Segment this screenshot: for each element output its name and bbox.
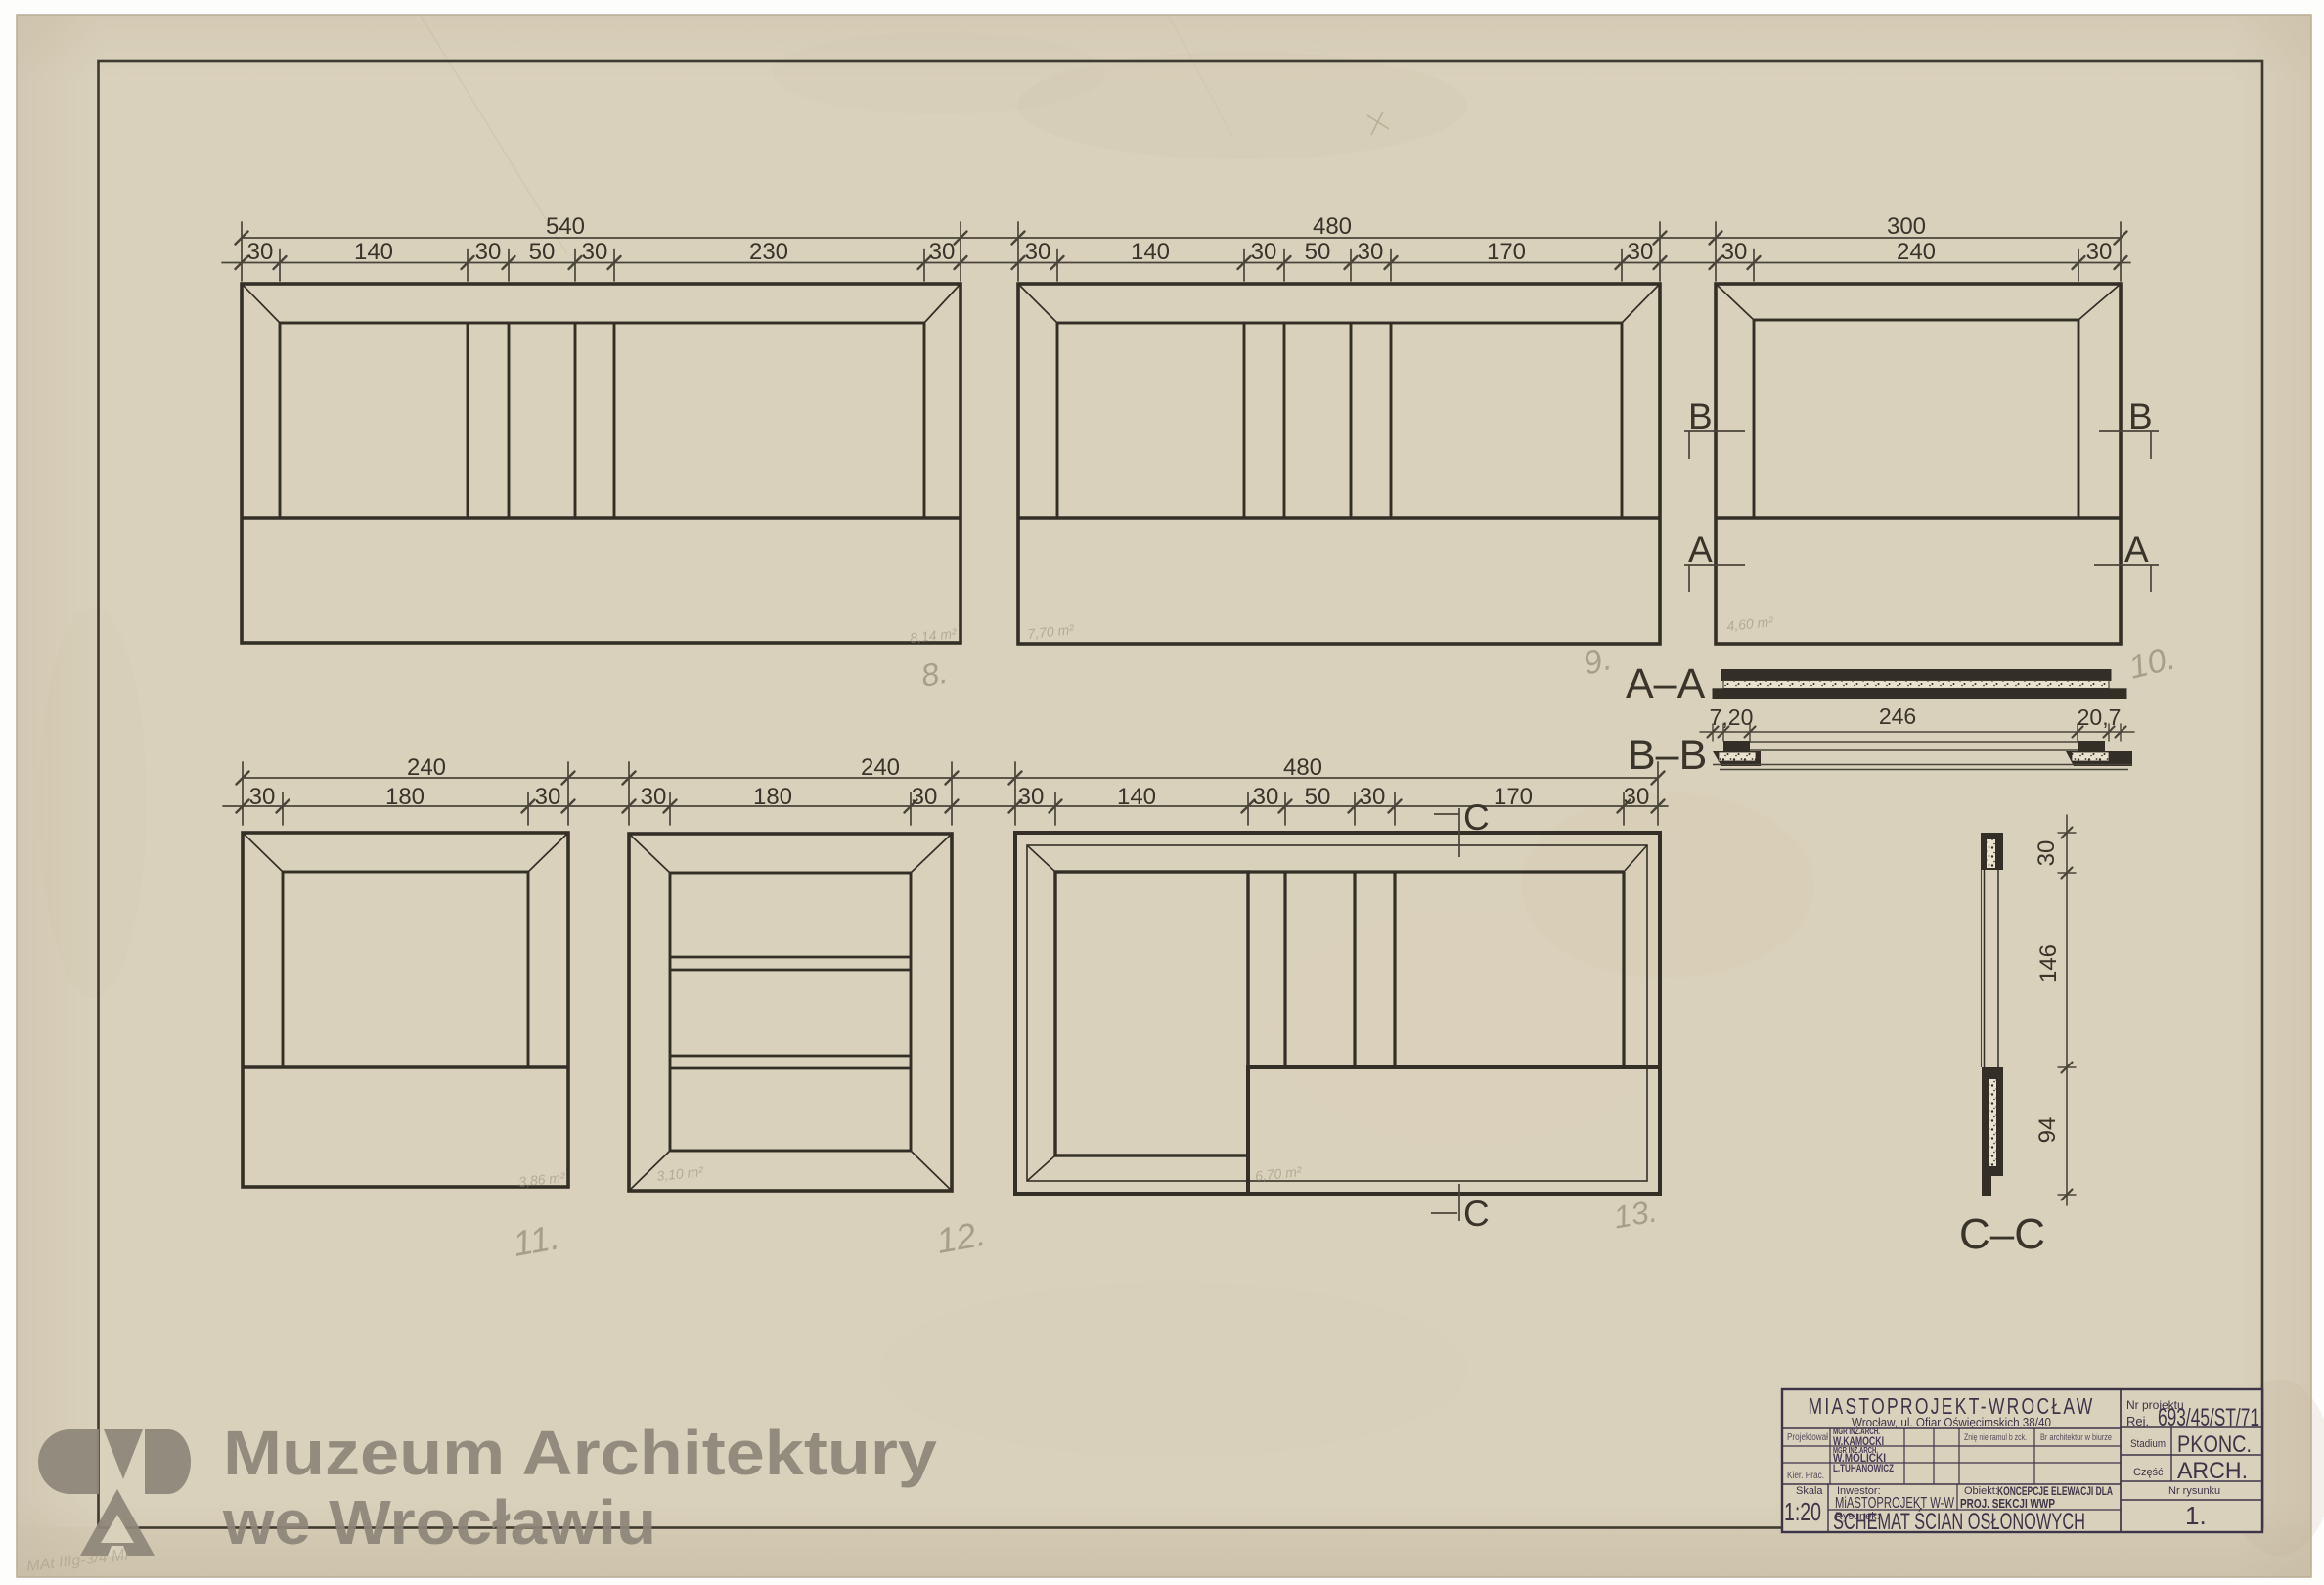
svg-text:240: 240 xyxy=(407,754,446,781)
svg-text:B: B xyxy=(2128,396,2153,436)
svg-text:1.: 1. xyxy=(2185,1501,2207,1530)
svg-text:140: 140 xyxy=(354,239,393,265)
svg-text:Br architektur w biurze: Br architektur w biurze xyxy=(2040,1432,2112,1442)
svg-text:30: 30 xyxy=(535,784,561,810)
svg-text:Znię nie ramul b zck.: Znię nie ramul b zck. xyxy=(1964,1432,2027,1442)
svg-text:50: 50 xyxy=(1305,239,1331,265)
svg-text:we Wrocławiu: we Wrocławiu xyxy=(222,1487,656,1558)
svg-text:Muzeum Architektury: Muzeum Architektury xyxy=(223,1418,937,1488)
svg-text:Część: Część xyxy=(2133,1467,2164,1478)
svg-text:ARCH.: ARCH. xyxy=(2177,1458,2248,1484)
svg-text:30: 30 xyxy=(582,239,608,265)
svg-text:480: 480 xyxy=(1313,213,1352,240)
svg-text:A: A xyxy=(1688,529,1713,569)
svg-text:7,20: 7,20 xyxy=(1710,704,1754,730)
svg-text:B: B xyxy=(1688,396,1713,436)
svg-text:Kier. Prac.: Kier. Prac. xyxy=(1787,1471,1824,1481)
svg-text:246: 246 xyxy=(1879,703,1916,729)
svg-text:30: 30 xyxy=(249,784,276,810)
svg-text:Rej.: Rej. xyxy=(2126,1414,2149,1428)
svg-text:30: 30 xyxy=(2086,239,2113,265)
svg-text:30: 30 xyxy=(247,239,274,265)
svg-text:Wrocław, ul. Ofiar Oświęcimski: Wrocław, ul. Ofiar Oświęcimskich 38/40 xyxy=(1852,1415,2051,1429)
svg-text:C–C: C–C xyxy=(1959,1210,2045,1258)
svg-text:SCHEMAT ŚCIAN OSŁONOWYCH: SCHEMAT ŚCIAN OSŁONOWYCH xyxy=(1833,1508,2085,1535)
svg-text:30: 30 xyxy=(1018,784,1045,810)
svg-text:30: 30 xyxy=(1251,239,1277,265)
svg-text:30: 30 xyxy=(475,239,502,265)
svg-text:50: 50 xyxy=(529,239,556,265)
svg-text:11.: 11. xyxy=(510,1216,562,1264)
svg-text:180: 180 xyxy=(753,784,792,810)
svg-text:170: 170 xyxy=(1487,239,1526,265)
svg-text:Skala: Skala xyxy=(1796,1485,1823,1497)
svg-text:30: 30 xyxy=(1628,239,1654,265)
svg-text:C: C xyxy=(1463,797,1490,838)
svg-text:30: 30 xyxy=(929,239,956,265)
svg-text:13.: 13. xyxy=(1611,1193,1660,1235)
svg-text:12.: 12. xyxy=(933,1213,988,1261)
svg-text:170: 170 xyxy=(1494,784,1533,810)
svg-text:20,7: 20,7 xyxy=(2078,704,2122,730)
svg-text:30: 30 xyxy=(1025,239,1051,265)
svg-text:Stadium: Stadium xyxy=(2130,1438,2166,1450)
svg-text:480: 480 xyxy=(1283,754,1322,781)
svg-text:1:20: 1:20 xyxy=(1784,1497,1821,1526)
svg-text:30: 30 xyxy=(641,784,667,810)
svg-text:30: 30 xyxy=(2033,840,2060,867)
svg-text:50: 50 xyxy=(1305,784,1331,810)
svg-text:146: 146 xyxy=(2035,944,2062,983)
svg-text:L.TUHANOWICZ: L.TUHANOWICZ xyxy=(1833,1463,1894,1474)
svg-text:180: 180 xyxy=(385,784,425,810)
svg-text:30: 30 xyxy=(1721,239,1748,265)
svg-text:140: 140 xyxy=(1131,239,1170,265)
svg-text:C: C xyxy=(1463,1194,1490,1234)
svg-text:30: 30 xyxy=(1360,784,1386,810)
svg-text:300: 300 xyxy=(1887,213,1926,240)
svg-text:230: 230 xyxy=(749,239,788,265)
svg-text:Nr rysunku: Nr rysunku xyxy=(2168,1485,2220,1497)
svg-text:94: 94 xyxy=(2034,1117,2061,1144)
svg-text:240: 240 xyxy=(861,754,900,781)
svg-text:30: 30 xyxy=(1253,784,1279,810)
svg-text:30: 30 xyxy=(1358,239,1384,265)
svg-text:693/45/ST/71: 693/45/ST/71 xyxy=(2158,1404,2259,1431)
svg-text:240: 240 xyxy=(1897,239,1936,265)
svg-text:30: 30 xyxy=(912,784,938,810)
svg-text:30: 30 xyxy=(1624,784,1650,810)
svg-text:Projektował: Projektował xyxy=(1787,1432,1829,1443)
svg-text:140: 140 xyxy=(1117,784,1156,810)
svg-text:B–B: B–B xyxy=(1628,732,1707,779)
svg-text:A: A xyxy=(2124,529,2149,569)
svg-text:A–A: A–A xyxy=(1626,660,1706,707)
svg-text:540: 540 xyxy=(546,213,585,240)
svg-text:PKONC.: PKONC. xyxy=(2177,1431,2252,1458)
